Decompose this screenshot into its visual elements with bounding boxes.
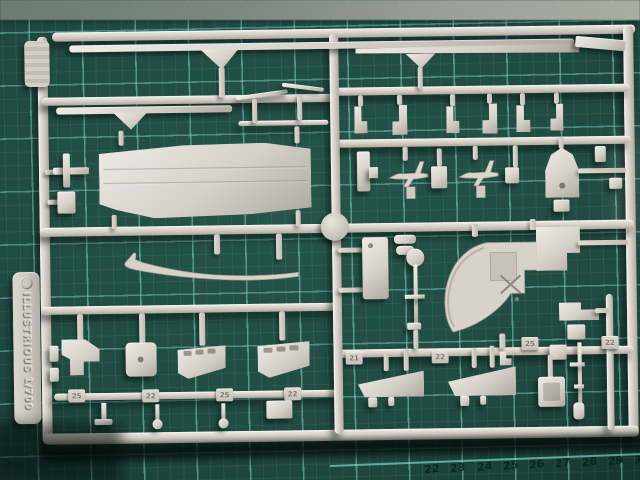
part-number-tag: 25 [216,388,233,401]
sprue-gate [118,131,123,146]
sprue-gate [199,313,205,346]
part-window [289,345,298,350]
part-number-tag: 22 [432,350,449,363]
small-fitting-part [460,396,469,406]
small-fitting-part [354,106,367,133]
strip-gusset [113,112,147,129]
sprue-gate [472,348,477,368]
wedge-deck-part [358,371,424,398]
sprue-runner [42,94,336,106]
sprue-gate [296,210,301,226]
sprue-gate [450,94,455,106]
photo-of-model-kit-sprue: ILLUSTRIOUS 1/700 [0,0,640,480]
ruler-number: 27 [555,456,571,478]
small-fitting-part [446,106,459,133]
sprue-gate [294,126,299,143]
small-block-part [369,167,378,178]
shield-mount-part [545,147,580,197]
sprue-runner [335,136,631,148]
sprue-gate [397,95,402,105]
sprue-label-tag: ILLUSTRIOUS 1/700 [12,272,41,424]
sprue-gate [548,355,553,379]
wedge-deck-part [448,366,516,396]
ruler-number: 23 [450,461,466,480]
small-block-part [50,368,59,382]
small-fitting-part [218,418,228,428]
small-fitting-part [392,105,407,135]
part-window [196,350,204,355]
sprue-gate [489,346,494,368]
small-block-part [266,400,292,418]
small-block-part [553,200,569,212]
sprue-gate [487,94,492,104]
small-fitting-part [368,397,377,407]
sprue-gate [578,240,628,246]
davit-part [53,167,89,175]
sprue-gate [513,145,518,167]
sprue-gate [384,353,389,371]
small-fitting-part [388,397,394,406]
small-block-part [505,167,519,183]
deckhouse-box-part [536,226,581,271]
sprue-gate [413,330,418,349]
sprue-gate [578,168,626,174]
davit-part [63,153,70,187]
sprue-gate [279,311,285,340]
sprue-gate [559,137,564,149]
bracket-part [61,339,99,376]
small-fitting-part [516,105,530,132]
sprue-gate [437,148,442,166]
part-number-tag: 22 [601,336,618,349]
small-block-part [57,191,75,213]
sprue-gate [339,287,363,292]
ruler-number: 25 [503,458,519,480]
yardarm-part [282,83,324,92]
part-number-tag: 25 [68,389,85,402]
sprue-gate [418,67,423,89]
sprue-gate [297,94,302,120]
ruler-number: 24 [476,459,492,480]
radar-mast-arm [405,295,425,299]
small-fitting-part [550,104,563,131]
part-number-tag: 22 [142,389,159,402]
part-window [263,348,272,353]
ruler-number: 3 [634,453,640,474]
sprue-runner [338,346,634,358]
small-block-part [431,166,447,188]
part-window [276,346,285,351]
sprue-gate [554,93,559,104]
sprue-gate [112,215,117,229]
part-hole [559,183,565,189]
sprue-gate [530,219,536,230]
aircraft-part [457,155,504,202]
small-block-part [559,302,599,321]
part-number-tag: 21 [346,351,363,364]
small-block-part [49,346,58,362]
kit-name-label: ILLUSTRIOUS [21,292,33,373]
sprue-gate [139,313,145,343]
mast-arm [570,362,585,366]
ruler-number: 22 [424,462,440,480]
sprue-runner [606,294,615,430]
ruler-number: 26 [529,457,545,479]
ruler-number: 28 [581,455,597,477]
part-hole [368,243,373,248]
sprue-frame: ILLUSTRIOUS 1/700 [0,0,640,480]
box-cavity [543,383,560,401]
mast-base-part [573,402,584,419]
part-number-tag: 25 [521,337,538,350]
sprue-center-junction [321,213,349,241]
sprue-gate [252,99,257,123]
sprue-id-tag [24,41,50,87]
small-block-part [567,324,585,339]
sprue-gate [338,247,362,252]
sprue-gate [595,308,609,313]
sprue-gate [520,93,525,105]
small-fitting-part [480,396,486,405]
sprue-gate [404,349,409,371]
sprue-shadow [0,424,122,480]
sprue-runner [41,303,341,315]
ruler-number: 29 [608,453,624,475]
maker-logo-icon [20,277,31,288]
part-window [208,348,216,353]
sprue-runner [334,84,630,96]
winch-part [394,235,416,244]
small-fitting-part [152,419,162,429]
small-block-part [595,146,606,162]
small-block-part [609,178,622,189]
funnel-block-part [362,237,389,299]
sprue-gate [219,67,225,97]
bow-deck-part [436,233,549,339]
part-hole [138,356,144,362]
boat-hull-part [120,248,305,303]
mast-arm [574,384,584,388]
aircraft-part [387,156,434,203]
sprue-gate [358,95,363,106]
deck-strip-end [575,36,626,51]
part-window [184,351,192,356]
sprue-gate [77,314,83,341]
small-fitting-part [482,104,497,134]
part-number-tag: 22 [284,387,301,400]
kit-scale-label: 1/700 [22,377,32,410]
